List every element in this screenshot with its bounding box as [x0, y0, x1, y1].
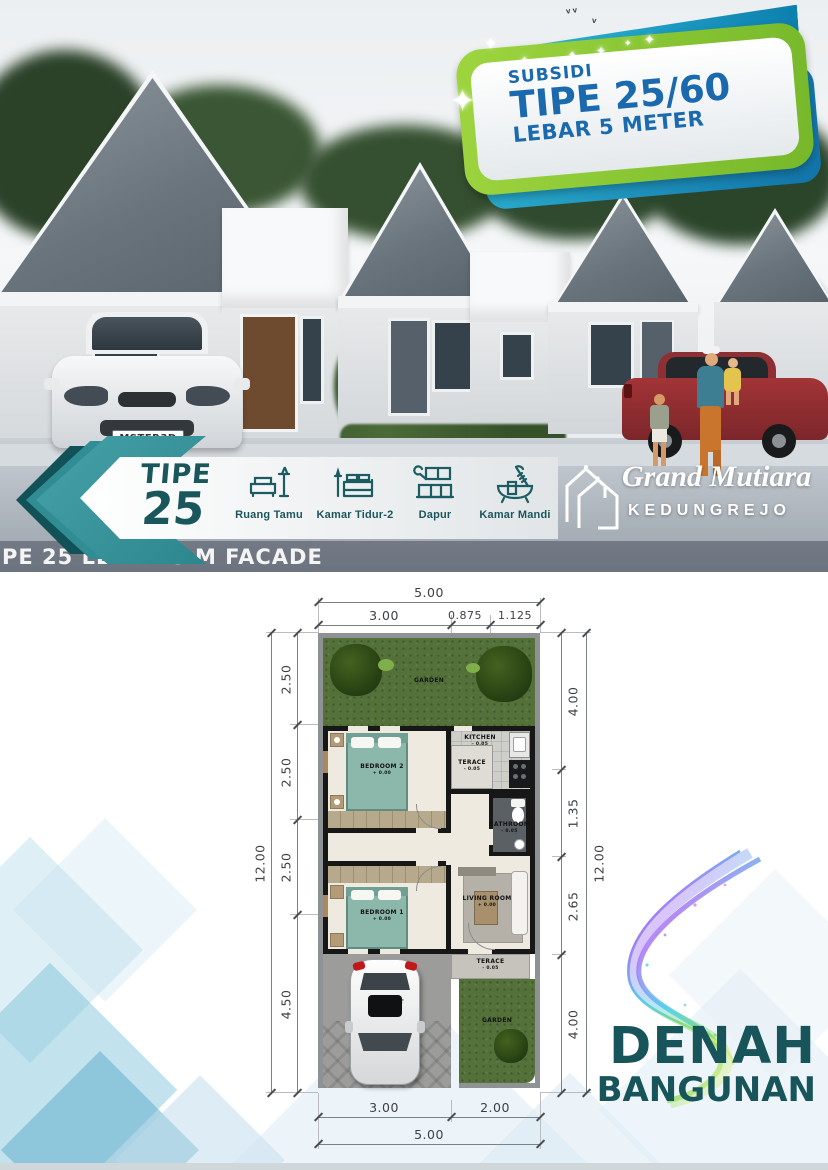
- car-top-view: [350, 959, 420, 1085]
- car-hub: [772, 434, 786, 448]
- ext-line: [290, 819, 318, 820]
- bathtub-icon: [492, 460, 538, 506]
- boy-shirt: [650, 405, 669, 430]
- car-windshield: [92, 317, 202, 350]
- ext-line: [451, 1100, 452, 1122]
- room-sub-bedroom1: + 0.00: [328, 917, 436, 923]
- bed-icon: [332, 460, 378, 506]
- sparkle-icon: ✦: [624, 38, 632, 49]
- person-torso: [697, 366, 724, 408]
- kitchen-stove: [509, 760, 530, 788]
- interior-wall: [446, 865, 451, 954]
- dim-line-bottom-segments: [318, 1117, 540, 1118]
- subsidi-badge: SUBSIDI TIPE 25/60 LEBAR 5 METER ✦ ✦ ✦ ✦…: [448, 6, 828, 216]
- house1-door: [240, 314, 298, 432]
- feature-label: Dapur: [392, 509, 478, 521]
- sparkle-icon: ✦: [520, 54, 529, 67]
- facade-photo: MSTER3D: [0, 0, 828, 572]
- dim-line-top-total: [318, 602, 540, 603]
- toilet-tank: [511, 799, 525, 807]
- ext-line: [266, 632, 318, 633]
- dim-label: 5.00: [394, 585, 464, 600]
- logo-location: KEDUNGREJO: [628, 502, 818, 520]
- ext-line: [290, 914, 318, 915]
- interior-wall: [328, 828, 416, 833]
- car-rear-window: [360, 973, 410, 990]
- car-grille: [118, 392, 176, 407]
- stove-burner: [513, 764, 518, 769]
- feature-label: Ruang Tamu: [226, 509, 312, 521]
- house1-sidelight-window: [300, 316, 324, 404]
- dim-label: 5.00: [394, 1127, 464, 1142]
- ext-line: [290, 724, 318, 725]
- car-mirror: [417, 1021, 425, 1033]
- sparkle-icon: ✦: [484, 34, 497, 54]
- bush-top-view: [494, 1029, 528, 1063]
- plot-wall: [459, 1083, 540, 1088]
- dim-line-bottom-total: [318, 1144, 540, 1145]
- stove-burner: [521, 764, 526, 769]
- stove-burner: [521, 774, 526, 779]
- house2-porch-window: [500, 332, 534, 380]
- type-number: 25: [125, 487, 221, 531]
- bed-pillow: [378, 890, 401, 900]
- car-mirror-left: [44, 378, 60, 390]
- plan-title-line1: DENAH: [560, 1022, 816, 1072]
- dim-line-left-total: [271, 633, 272, 1093]
- house-logo-icon: [562, 458, 624, 534]
- window-gap: [380, 726, 400, 731]
- dim-label: 2.50: [279, 838, 294, 898]
- feature-kamar-mandi: Kamar Mandi: [472, 460, 558, 521]
- sparkle-icon: ✦: [644, 32, 655, 48]
- lamp: [334, 799, 340, 805]
- shrub: [466, 663, 480, 673]
- nightstand: [330, 885, 344, 899]
- lamp: [334, 737, 340, 743]
- room-sub-terrace1: - 0.05: [451, 767, 493, 773]
- developer-logo: Grand Mutiara KEDUNGREJO: [558, 452, 820, 548]
- dim-label: 3.00: [350, 1100, 418, 1115]
- shrub: [378, 659, 394, 671]
- plot-wall: [535, 633, 540, 1088]
- kitchen-sink: [513, 737, 526, 752]
- feature-ruang-tamu: Ruang Tamu: [226, 460, 312, 521]
- room-label-kitchen: KITCHEN: [451, 734, 509, 742]
- sparkle-icon: ✦: [596, 44, 606, 58]
- plan-title: DENAH BANGUNAN: [560, 1022, 816, 1108]
- house1-porch-parapet: [222, 208, 348, 308]
- tree-top-view: [476, 646, 532, 702]
- room-label-terrace1: TERACE: [451, 759, 493, 767]
- boy-head: [654, 394, 665, 405]
- sparkle-icon: ✦: [568, 50, 576, 61]
- bathroom-sink: [514, 839, 525, 850]
- room-sub-bedroom2: + 0.00: [328, 771, 436, 777]
- room-label-bedroom1: BEDROOM 1: [328, 909, 436, 917]
- stove-burner: [513, 774, 518, 779]
- room-sub-terrace2: - 0.05: [451, 966, 530, 972]
- car-windshield-top: [358, 1033, 412, 1051]
- tv-cabinet: [458, 867, 496, 876]
- feature-dapur: Dapur: [392, 460, 478, 521]
- room-label-bedroom2: BEDROOM 2: [328, 763, 436, 771]
- room-sub-bathroom: - 0.05: [489, 829, 530, 835]
- dim-label: 2.50: [279, 650, 294, 710]
- sofa-icon: [246, 460, 292, 506]
- feature-label: Kamar Mandi: [472, 509, 558, 521]
- room-sub-livingroom: + 0.00: [451, 903, 523, 909]
- dim-label: 2.00: [462, 1100, 528, 1115]
- floor-plan: GARDEN BEDROOM 2 + 0.00 KITCHEN - 0.05 T…: [318, 633, 540, 1093]
- bed-pillow: [351, 737, 374, 748]
- kitchen-cabinet-icon: [412, 460, 458, 506]
- type-block: TIPE 25: [125, 463, 223, 535]
- bed-pillow: [378, 737, 401, 748]
- child-body: [724, 368, 741, 392]
- room-sub-kitchen: - 0.05: [451, 742, 509, 748]
- bottom-edge-strip: [0, 1163, 828, 1170]
- person-head: [705, 353, 718, 366]
- dim-label: 4.00: [566, 672, 581, 732]
- dim-label: 0.875: [442, 609, 488, 622]
- room-label-bathroom: BATHROOM: [489, 821, 530, 829]
- room-label-carport: CARPORT: [323, 999, 451, 1007]
- car-mirror: [345, 1021, 353, 1033]
- room-sub-carport: - 0.25: [323, 1007, 451, 1013]
- plan-title-line2: BANGUNAN: [560, 1072, 816, 1108]
- child-leg: [726, 391, 731, 405]
- garden-bottom: [459, 979, 535, 1083]
- room-label-garden-top: GARDEN: [323, 677, 535, 685]
- child-leg: [734, 391, 739, 405]
- room-label-terrace2: TERACE: [451, 958, 530, 966]
- window-gap: [348, 726, 368, 731]
- house3-eave: [548, 302, 698, 312]
- dim-label: 1.35: [566, 784, 581, 844]
- dim-line-left-segments: [297, 633, 298, 1093]
- dim-label: 4.50: [279, 975, 294, 1035]
- tree-top-view: [330, 644, 382, 696]
- dim-label: 1.125: [489, 609, 541, 622]
- boy-shorts: [652, 429, 667, 442]
- dim-label: 3.00: [350, 608, 418, 623]
- car-headlight-left: [64, 386, 108, 406]
- dim-label: 12.00: [253, 834, 268, 894]
- car-mirror-right: [234, 378, 250, 390]
- bed-pillow: [351, 890, 374, 900]
- white-car: MSTER3D: [52, 312, 242, 448]
- room-label-garden-bottom: GARDEN: [459, 1017, 535, 1025]
- nightstand: [330, 933, 344, 947]
- person-pants: [700, 406, 721, 452]
- feature-kamar-tidur: Kamar Tidur-2: [312, 460, 398, 521]
- car-taillight: [624, 384, 632, 398]
- house2-door: [388, 318, 430, 416]
- feature-label: Kamar Tidur-2: [312, 509, 398, 521]
- ext-line: [266, 1092, 318, 1093]
- child-head: [728, 358, 738, 368]
- car-headlight-right: [186, 386, 230, 406]
- logo-name: Grand Mutiara: [622, 460, 818, 494]
- sparkle-icon: ✦: [450, 84, 475, 119]
- flyer-page: MSTER3D: [0, 0, 828, 1170]
- room-label-livingroom: LIVING ROOM: [451, 895, 523, 903]
- dim-line-top-segments: [318, 625, 540, 626]
- dim-label: 2.50: [279, 743, 294, 803]
